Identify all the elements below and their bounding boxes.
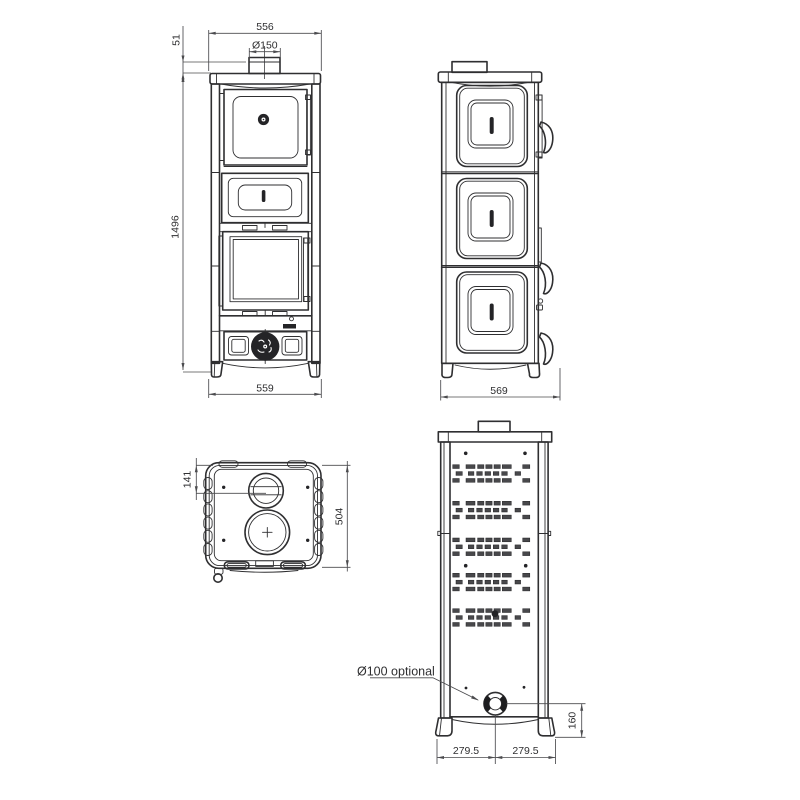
dim-569: 569 — [441, 368, 560, 401]
flue-collar-side — [452, 62, 487, 73]
top-plate-front — [210, 74, 321, 89]
rear-flue-callout: Ø100 optional — [357, 665, 479, 701]
top-view: 141 504 — [182, 458, 351, 582]
air-spinner-rosette — [251, 330, 279, 364]
vent-group — [453, 609, 530, 627]
dim-559: 559 — [209, 379, 322, 398]
dim-556-label: 556 — [256, 21, 274, 33]
side-view: 569 — [438, 62, 560, 401]
dim-1496: 1496 — [170, 75, 212, 372]
vent-group — [453, 538, 530, 556]
hinge-strip-lower — [220, 310, 312, 331]
dim-160: 160 — [507, 704, 586, 738]
dim-flue-150-label: Ø150 — [252, 40, 278, 52]
dim-160-label: 160 — [567, 712, 579, 730]
upper-door-handle — [540, 122, 553, 153]
oven-door-front — [220, 90, 311, 167]
dim-569-label: 569 — [490, 385, 508, 397]
rear-plug — [492, 610, 499, 617]
front-view: 556 Ø150 51 1496 — [170, 21, 322, 398]
side-legs — [442, 363, 540, 377]
dim-504-label: 504 — [334, 508, 346, 526]
rear-view: Ø100 optional 160 279.5 279.5 — [357, 421, 586, 764]
top-knob — [214, 568, 223, 582]
flue-collar-rear — [478, 421, 510, 432]
oven-door-knob — [258, 114, 269, 125]
side-panel-bottom — [457, 272, 528, 353]
fire-door-front — [219, 232, 310, 310]
dim-51: 51 — [171, 26, 247, 370]
vent-group — [453, 465, 530, 483]
flue-outlet-top — [249, 473, 284, 508]
ash-compartment-front — [224, 330, 307, 364]
dim-51-label: 51 — [171, 34, 183, 46]
dim-1496-label: 1496 — [170, 215, 182, 239]
side-panel-middle — [457, 179, 528, 259]
top-front-handles — [224, 561, 305, 572]
technical-drawing-page: 556 Ø150 51 1496 — [0, 0, 800, 800]
dim-279-5-right-label: 279.5 — [512, 745, 538, 757]
side-panel-top — [457, 86, 528, 167]
dim-559-label: 559 — [256, 382, 274, 394]
dim-504: 504 — [322, 461, 351, 572]
vent-group — [453, 573, 530, 591]
rear-top-bar — [438, 432, 551, 442]
rear-vent-panel — [450, 452, 538, 717]
dim-141-label: 141 — [182, 471, 194, 489]
warming-drawer-front — [222, 173, 309, 222]
middle-door-handle — [540, 263, 553, 294]
hinge-strip-upper — [220, 223, 312, 231]
top-plate-side — [438, 72, 541, 86]
rear-flue-callout-label: Ø100 optional — [357, 665, 435, 679]
lower-door-handle — [540, 333, 553, 364]
front-legs — [211, 362, 319, 377]
vent-group — [453, 501, 530, 519]
rear-flue-port — [484, 692, 507, 715]
dim-279-5-left-label: 279.5 — [453, 745, 479, 757]
hotplate-ring-top — [245, 510, 290, 555]
drawer-handle-slot — [262, 190, 266, 202]
